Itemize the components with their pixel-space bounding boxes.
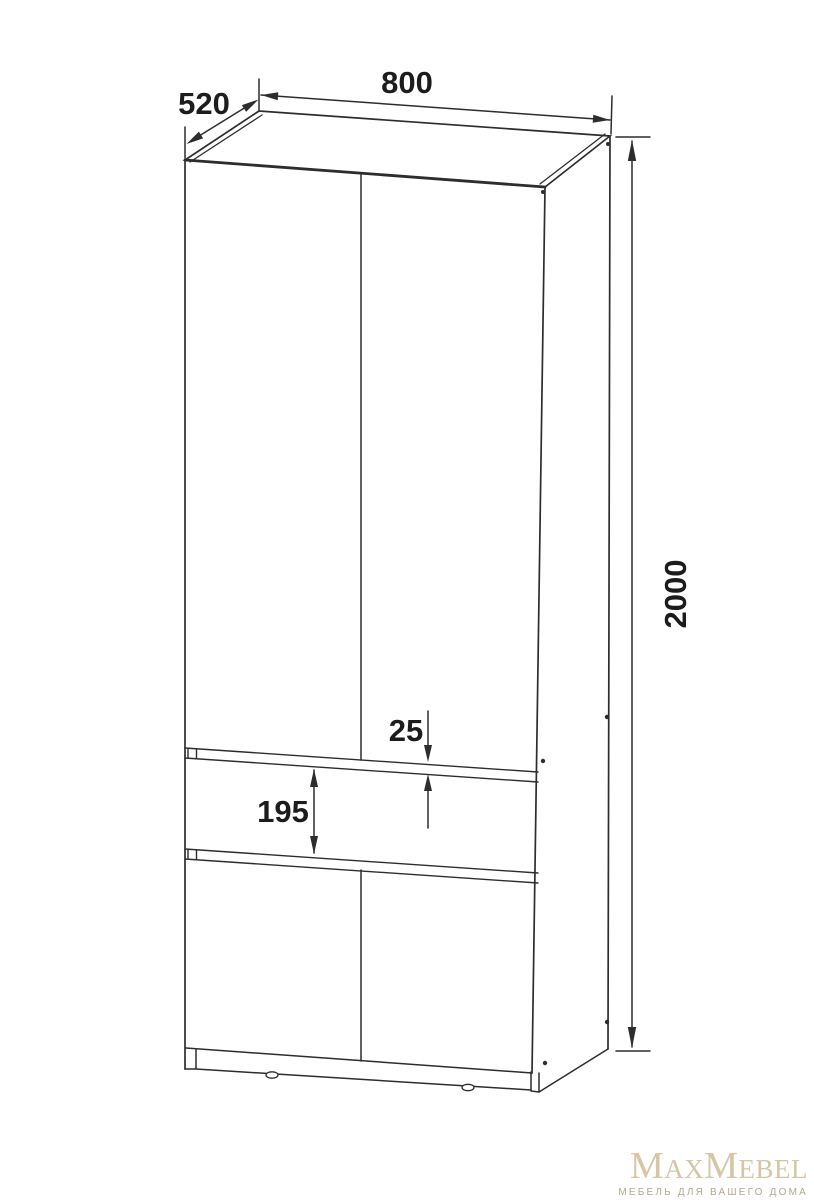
strip-top-line <box>185 849 538 873</box>
plinth-bottom-edge <box>196 1069 531 1090</box>
adjustable-foot <box>462 1084 474 1090</box>
fitting-dot <box>605 1020 609 1024</box>
dimension-width-label: 800 <box>381 65 433 100</box>
arrowhead-upper-right <box>242 100 259 112</box>
fitting-dot <box>541 190 545 194</box>
fitting-dot <box>543 1061 547 1065</box>
fitting-dot <box>541 759 545 763</box>
left-foot <box>185 1050 196 1069</box>
cabinet-edges <box>185 136 610 1073</box>
dimension-gap: 25 <box>389 711 432 828</box>
adjustable-foot <box>266 1072 278 1078</box>
arrowhead-down <box>628 1027 636 1048</box>
arrowhead-lower-left <box>187 132 204 144</box>
side-panel-bottom-edge <box>539 1049 608 1092</box>
brand-name: MaxMebel <box>618 1147 808 1185</box>
top-face <box>185 111 610 187</box>
arrowhead-up <box>628 140 636 161</box>
fitting-dots <box>541 142 610 1065</box>
drawing-canvas: 800 520 2000 <box>0 0 814 1200</box>
brand-logo: MaxMebel МЕБЕЛЬ ДЛЯ ВАШЕГО ДОМА <box>618 1147 808 1198</box>
arrowhead-right <box>593 115 610 123</box>
extension-line <box>611 96 612 134</box>
strip-left-cap <box>188 849 197 860</box>
right-foot <box>531 1072 539 1092</box>
brand-tagline: МЕБЕЛЬ ДЛЯ ВАШЕГО ДОМА <box>618 1188 808 1198</box>
arrowhead-down <box>424 745 432 762</box>
dimension-height-label: 2000 <box>658 560 693 629</box>
arrowhead-left <box>261 92 278 100</box>
dimension-drawer-front-label: 195 <box>257 794 309 829</box>
fitting-dot <box>605 715 609 719</box>
plinth <box>185 1048 608 1092</box>
arrowhead-up <box>424 774 432 791</box>
dimension-depth-label: 520 <box>178 86 230 121</box>
strip-left-cap <box>188 748 197 759</box>
back-right-edge <box>608 136 610 1049</box>
arrowhead-up <box>310 769 318 787</box>
dimension-height: 2000 <box>616 137 693 1051</box>
arrowhead-down <box>310 836 318 854</box>
cabinet-body <box>185 111 610 1092</box>
dimensions: 800 520 2000 <box>178 65 693 1051</box>
dimension-gap-label: 25 <box>389 713 423 748</box>
strip-bottom-line <box>185 758 538 782</box>
wardrobe-technical-drawing: 800 520 2000 <box>0 0 814 1200</box>
doors-bottom-edge <box>186 1048 532 1073</box>
fitting-dot <box>606 142 610 146</box>
front-right-edge <box>532 187 545 1073</box>
dimension-drawer-front: 195 <box>257 769 318 854</box>
